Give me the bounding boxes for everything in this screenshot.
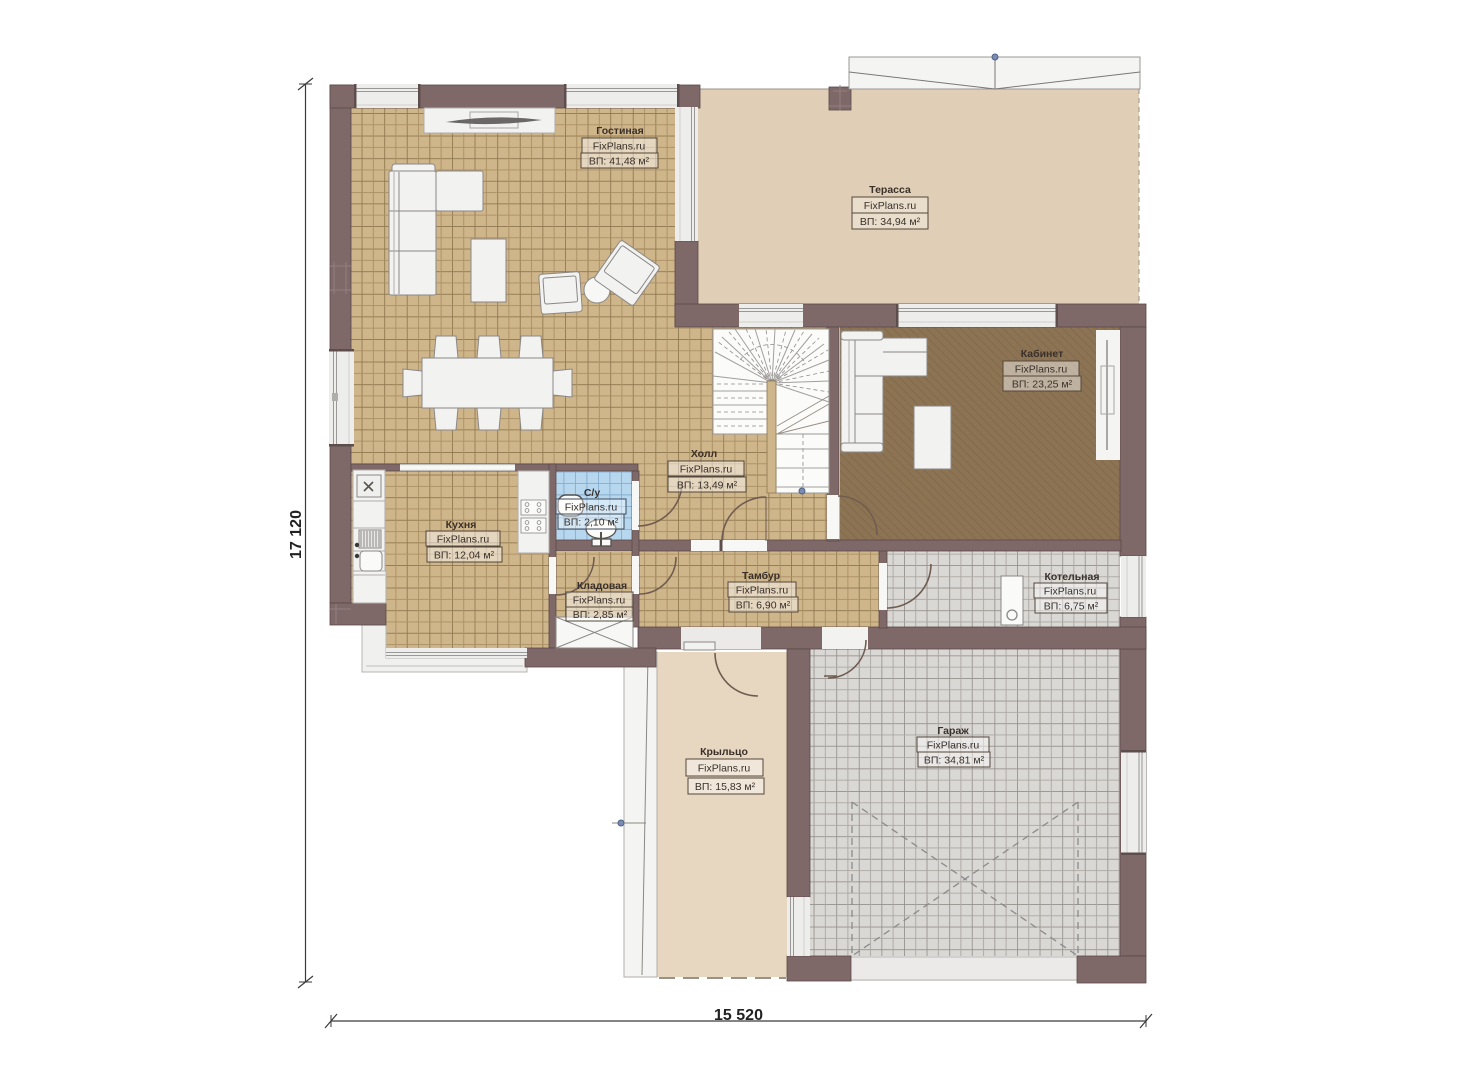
svg-text:ВП: 23,25 м²: ВП: 23,25 м² bbox=[1012, 379, 1073, 391]
svg-text:ВП: 2,10 м²: ВП: 2,10 м² bbox=[564, 517, 619, 529]
svg-text:FixPlans.ru: FixPlans.ru bbox=[1044, 586, 1097, 598]
svg-text:ВП: 15,83 м²: ВП: 15,83 м² bbox=[695, 781, 756, 793]
svg-text:Кухня: Кухня bbox=[446, 519, 477, 531]
svg-text:FixPlans.ru: FixPlans.ru bbox=[437, 534, 490, 546]
svg-text:Кладовая: Кладовая bbox=[577, 580, 627, 592]
svg-text:Кабинет: Кабинет bbox=[1021, 348, 1064, 360]
svg-text:ВП: 41,48 м²: ВП: 41,48 м² bbox=[589, 156, 650, 168]
svg-text:FixPlans.ru: FixPlans.ru bbox=[1015, 364, 1068, 376]
svg-text:17 120: 17 120 bbox=[288, 510, 305, 559]
svg-text:ВП: 13,49 м²: ВП: 13,49 м² bbox=[677, 480, 738, 492]
svg-text:FixPlans.ru: FixPlans.ru bbox=[864, 200, 917, 212]
svg-text:FixPlans.ru: FixPlans.ru bbox=[680, 464, 733, 476]
svg-text:С/у: С/у bbox=[584, 487, 601, 499]
svg-text:FixPlans.ru: FixPlans.ru bbox=[698, 763, 751, 775]
svg-text:ВП: 2,85 м²: ВП: 2,85 м² bbox=[573, 609, 628, 621]
svg-text:Холл: Холл bbox=[691, 448, 717, 460]
svg-text:ВП: 34,81 м²: ВП: 34,81 м² bbox=[924, 755, 985, 767]
svg-text:FixPlans.ru: FixPlans.ru bbox=[736, 585, 789, 597]
svg-text:FixPlans.ru: FixPlans.ru bbox=[593, 141, 646, 153]
svg-text:Тамбур: Тамбур bbox=[742, 570, 780, 582]
svg-text:FixPlans.ru: FixPlans.ru bbox=[565, 502, 618, 514]
svg-text:FixPlans.ru: FixPlans.ru bbox=[573, 595, 626, 607]
svg-text:FixPlans.ru: FixPlans.ru bbox=[927, 740, 980, 752]
svg-text:Гостиная: Гостиная bbox=[596, 125, 643, 137]
svg-text:ВП: 6,75 м²: ВП: 6,75 м² bbox=[1044, 601, 1099, 613]
svg-text:ВП: 6,90 м²: ВП: 6,90 м² bbox=[736, 600, 791, 612]
svg-text:Крыльцо: Крыльцо bbox=[700, 746, 748, 758]
svg-text:15 520: 15 520 bbox=[714, 1007, 763, 1024]
svg-text:ВП: 12,04 м²: ВП: 12,04 м² bbox=[434, 550, 495, 562]
svg-text:Котельная: Котельная bbox=[1045, 571, 1100, 583]
svg-text:ВП: 34,94 м²: ВП: 34,94 м² bbox=[860, 216, 921, 228]
svg-text:Терасса: Терасса bbox=[869, 184, 911, 196]
svg-text:Гараж: Гараж bbox=[937, 725, 969, 737]
